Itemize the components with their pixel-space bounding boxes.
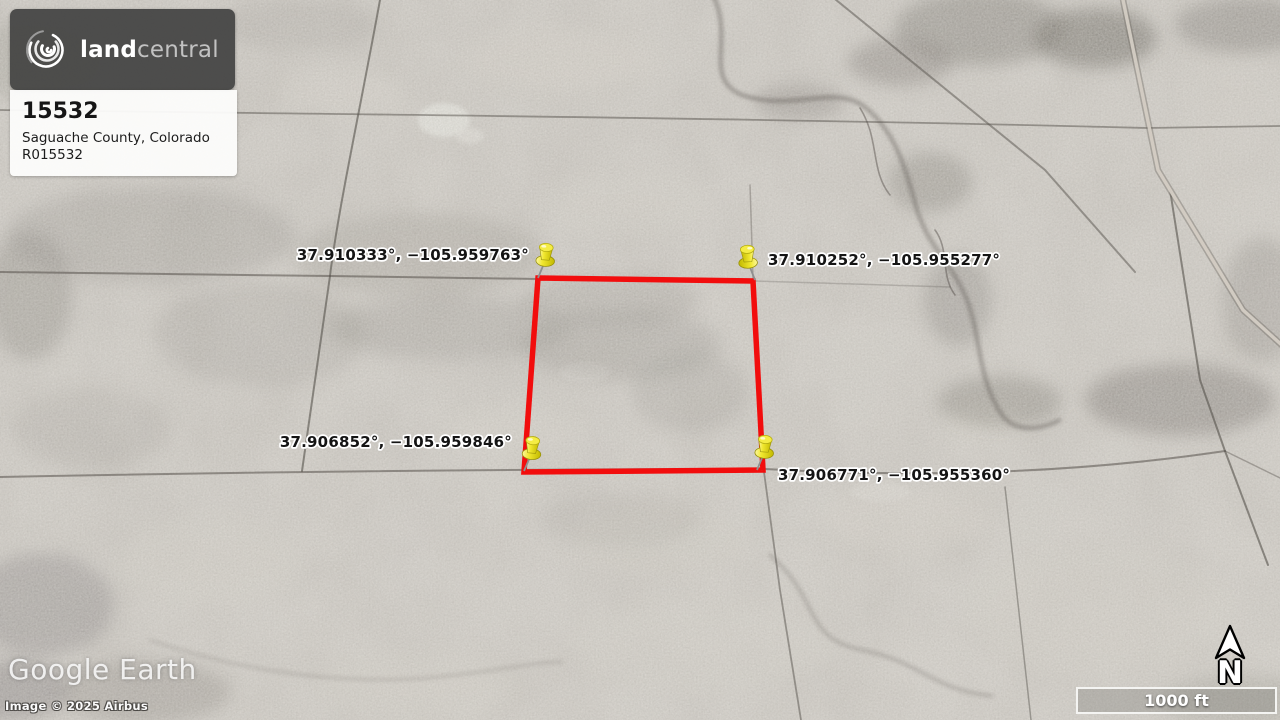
placemark-pin-ne[interactable] [738, 245, 758, 281]
coordinate-label-sw: 37.906852°, −105.959846° [280, 433, 512, 451]
coordinate-label-nw: 37.910333°, −105.959763° [297, 246, 529, 264]
brand-word-land: land [80, 37, 137, 63]
north-indicator[interactable]: N [1205, 624, 1255, 688]
parcel-number: 15532 [22, 100, 237, 124]
parcel-location: Saguache County, Colorado [22, 130, 237, 147]
listing-info-card: landcentral 15532 Saguache County, Color… [10, 9, 235, 176]
map-scale-bar: 1000 ft [1076, 687, 1277, 714]
landcentral-swirl-icon [24, 27, 68, 73]
north-label: N [1205, 660, 1255, 688]
map-viewport[interactable]: 37.910333°, −105.959763° 37.910252°, −10… [0, 0, 1280, 720]
coordinate-label-se: 37.906771°, −105.955360° [778, 466, 1010, 484]
scale-label: 1000 ft [1144, 691, 1209, 710]
brand-word-central: central [137, 37, 219, 63]
parcel-reference: R015532 [22, 147, 237, 164]
landcentral-wordmark: landcentral [80, 37, 219, 63]
parcel-details: 15532 Saguache County, Colorado R015532 [10, 90, 237, 176]
property-boundary [524, 278, 763, 472]
coordinate-label-ne: 37.910252°, −105.955277° [768, 251, 1000, 269]
imagery-attribution: Image © 2025 Airbus [5, 699, 148, 713]
google-earth-watermark: Google Earth [8, 653, 197, 686]
placemark-pin-nw[interactable] [535, 243, 556, 279]
landcentral-logo: landcentral [10, 9, 235, 90]
